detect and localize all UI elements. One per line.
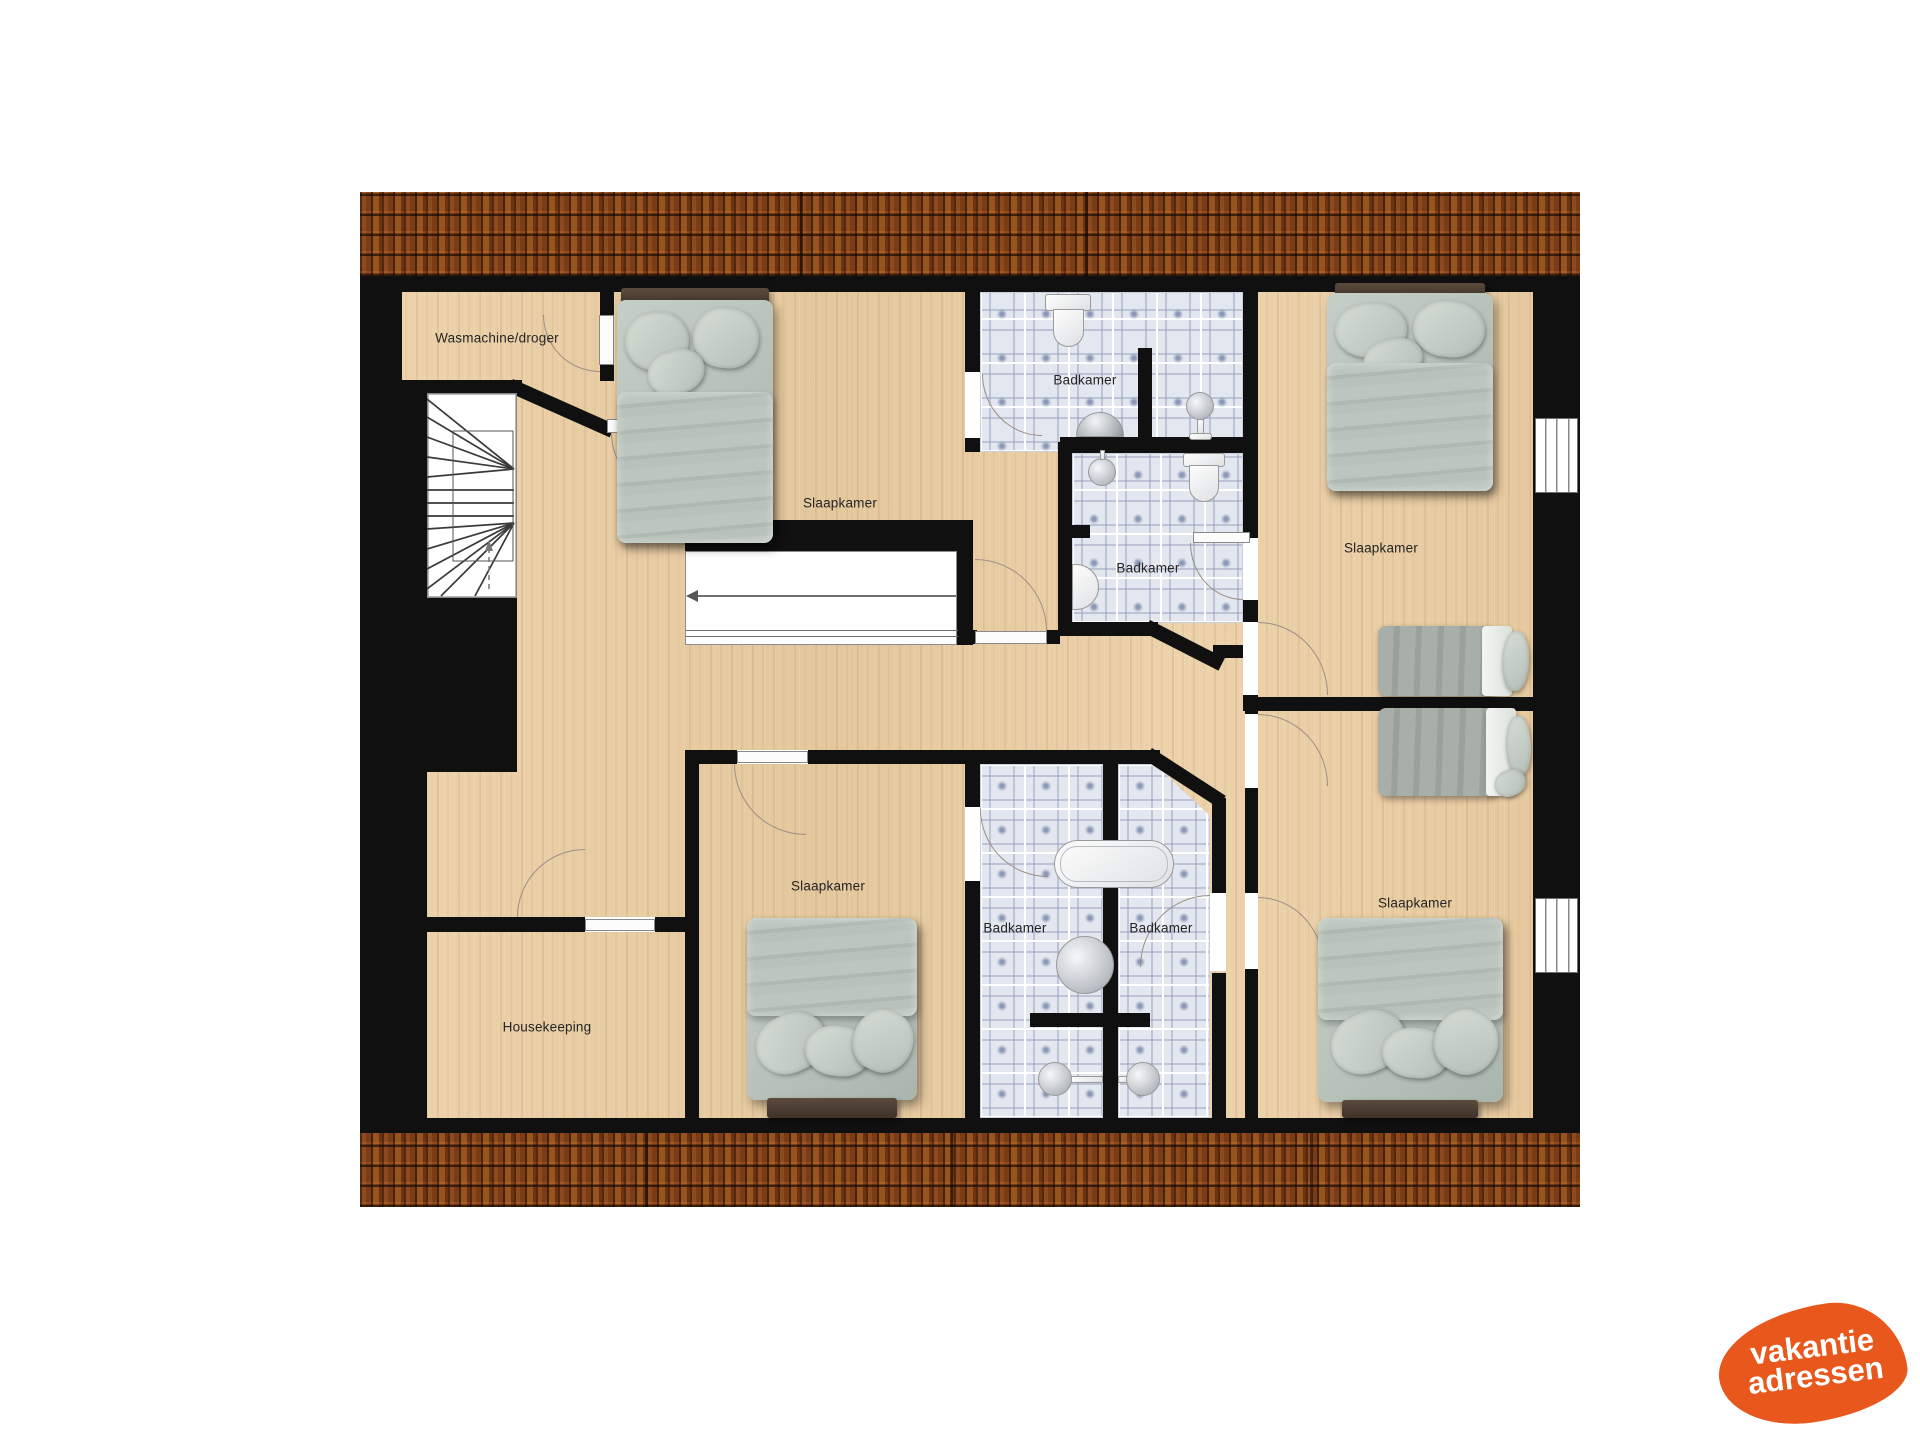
door-leaf [737, 751, 808, 763]
bed-duvet [1327, 363, 1493, 491]
wall-laundry-divider-bottom [600, 363, 614, 381]
room-label-bathroom-top: Badkamer [1053, 373, 1116, 388]
floorplan-scene: Wasmachine/droger Slaapkamer Badkamer Ba… [0, 0, 1920, 1440]
wall-cross-vertical-bottom [1103, 886, 1118, 1118]
bed-duvet [1378, 708, 1498, 796]
door-opening [1245, 893, 1258, 969]
double-bed [1318, 918, 1503, 1118]
wall-stairwell-right [957, 538, 973, 645]
wall-bath4-right-upper [1212, 798, 1226, 893]
wall-corridor-bottom-l [957, 630, 977, 644]
bed-pillow [1505, 716, 1532, 777]
shower-head-icon [1088, 458, 1116, 486]
bed-pillow [1501, 631, 1530, 692]
roof-seam [950, 1133, 953, 1207]
bed-duvet [1318, 918, 1503, 1020]
room-label-bedroom-top-center: Slaapkamer [803, 496, 877, 511]
wall-laundry-divider-top [600, 292, 614, 317]
bathtub [1054, 840, 1174, 888]
room-label-bathroom-bottom-left: Badkamer [983, 921, 1046, 936]
bed-duvet [747, 918, 917, 1016]
roof-band-bottom [360, 1133, 1580, 1207]
door-leaf [585, 919, 655, 931]
wall-bedroom5-left [685, 764, 699, 1118]
door-opening [965, 807, 980, 881]
roof-seam [1085, 192, 1088, 276]
door-leaf [1193, 532, 1250, 543]
bed-duvet [617, 392, 773, 543]
washbasin-base [1189, 433, 1212, 440]
bed-headboard [1342, 1100, 1478, 1118]
window [1535, 898, 1578, 973]
single-bed [1378, 624, 1533, 698]
wall-left [360, 276, 402, 1133]
room-label-bathroom-bottom-right: Badkamer [1129, 921, 1192, 936]
wall-bath4-right-lower [1212, 973, 1226, 1118]
room-label-laundry: Wasmachine/droger [435, 331, 559, 346]
double-bed [617, 288, 773, 543]
shower-arm [1070, 1076, 1103, 1083]
toilet-bowl [1053, 309, 1084, 347]
wall-below-stairs [427, 598, 517, 772]
wall-bath-divider [1060, 437, 1258, 453]
bathtub-inner [1060, 846, 1168, 882]
single-bed [1378, 706, 1533, 798]
wall-cross-vertical-top [1103, 764, 1118, 844]
wall-bottom [360, 1118, 1580, 1133]
shower-head-icon [1038, 1062, 1072, 1096]
roof-seam [645, 1133, 648, 1207]
window [1535, 418, 1578, 493]
wall-bath2-bottom [1058, 622, 1158, 636]
toilet-bowl [1189, 465, 1219, 502]
washbasin-icon [1186, 392, 1214, 420]
vakantieadressen-logo: vakantie adressen [1712, 1298, 1912, 1430]
door-opening [1245, 714, 1258, 788]
shower-arm [1100, 450, 1105, 460]
door-leaf [975, 631, 1047, 644]
roof-seam [1310, 1133, 1313, 1207]
double-bed [747, 918, 917, 1118]
door-opening [965, 372, 980, 438]
round-basin [1056, 936, 1114, 994]
stair-direction-arrow [686, 590, 698, 602]
wall-left-strip [402, 380, 427, 1118]
room-label-bedroom-bottom-right: Slaapkamer [1378, 896, 1452, 911]
door-opening [1210, 893, 1226, 971]
bed-duvet [1378, 626, 1494, 696]
wall-cross-horizontal [1030, 1013, 1150, 1027]
winder-staircase [427, 393, 517, 598]
roof-band-top [360, 192, 1580, 276]
stair-line [694, 595, 956, 597]
door-opening [1243, 538, 1258, 600]
shower-head-icon [1126, 1062, 1160, 1096]
room-label-bedroom-top-right: Slaapkamer [1344, 541, 1418, 556]
roof-seam [800, 192, 803, 276]
stairwell-void [685, 551, 957, 645]
stair-line [686, 636, 958, 637]
room-label-bedroom-bottom-center: Slaapkamer [791, 879, 865, 894]
room-label-bathroom-middle: Badkamer [1116, 561, 1179, 576]
door-leaf [599, 315, 614, 365]
double-bed [1327, 283, 1493, 491]
stair-line [686, 630, 958, 631]
bed-headboard [767, 1098, 897, 1118]
room-label-housekeeping: Housekeeping [503, 1020, 592, 1035]
door-opening [1243, 622, 1258, 695]
wall-bath1-partition [1138, 348, 1152, 437]
wall-right-band [1533, 276, 1580, 1133]
wall-bath2-left [1058, 442, 1072, 636]
wall-bath2-stub [1058, 525, 1090, 538]
